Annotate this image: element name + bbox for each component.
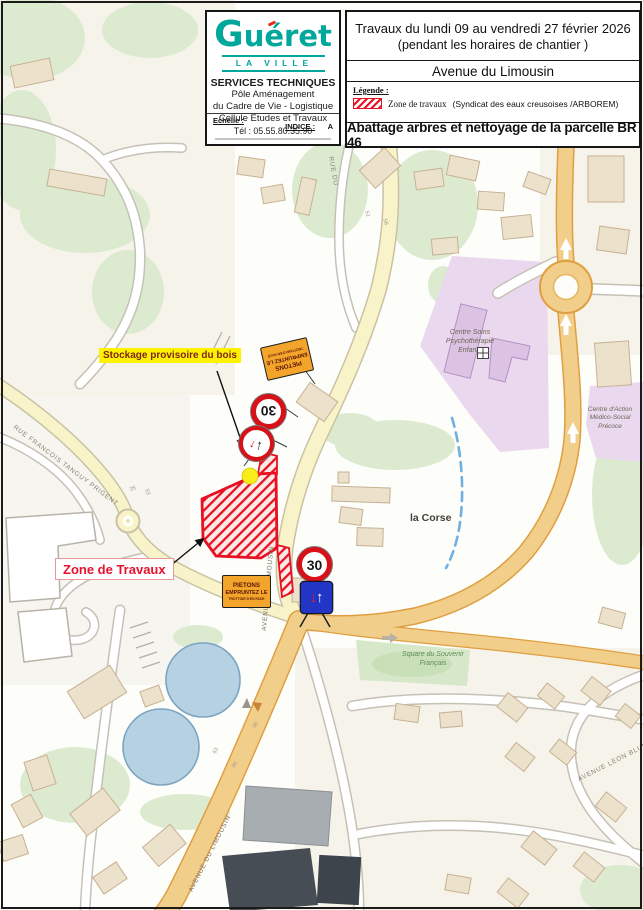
street-title: Avenue du Limousin [347, 61, 639, 82]
fine-print [215, 138, 331, 141]
legend-row: Zone de travaux (Syndicat des eaux creus… [353, 98, 633, 109]
pedestrian-sign: PIETONS EMPRUNTEZ LE TROTTOIR D'EN FACE [222, 575, 271, 608]
centre-action-line2: Médico-Social [578, 414, 642, 422]
speed-limit-value: 30 [307, 558, 323, 572]
logo-box: Guéret LA VILLE SERVICES TECHNIQUES Pôle… [205, 10, 341, 146]
square-line2: Français [388, 659, 478, 668]
index-label: INDICE : [285, 122, 315, 131]
title-block: Travaux du lundi 09 au vendredi 27 févri… [345, 10, 641, 148]
works-dates-box: Travaux du lundi 09 au vendredi 27 févri… [347, 12, 639, 61]
white-up-arrow-icon: ↑ [316, 590, 324, 605]
centre-action-line1: Centre d'Action [578, 406, 642, 414]
city-logo: Guéret [207, 16, 339, 54]
centre-action-line3: Précoce [578, 423, 642, 431]
centre-soins-line1: Centre Soins [420, 328, 520, 337]
legend-label: Légende : [353, 85, 633, 95]
storage-annotation: Stockage provisoire du bois [99, 348, 241, 363]
work-description-title: Abattage arbres et nettoyage de la parce… [347, 122, 639, 146]
speed-limit-sign: 30 [297, 547, 332, 582]
place-label-centre-soins: Centre Soins Psychothérapie Enfants [420, 328, 520, 355]
square-line1: Square du Souvenir [388, 650, 478, 659]
place-label-centre-action: Centre d'Action Médico-Social Précoce [578, 406, 642, 431]
place-label-la-corse: la Corse [410, 512, 451, 524]
roundabout-mini [117, 510, 140, 533]
works-dates-line2: (pendant les horaires de chantier ) [398, 38, 588, 52]
pedestrian-sign-line2: EMPRUNTEZ LE [226, 590, 268, 597]
legend-box: Légende : Zone de travaux (Syndicat des … [347, 82, 639, 122]
roundabout-main [540, 261, 592, 313]
pedestrian-sign-line1: PIETONS [233, 582, 260, 590]
works-plan-sheet: RUE DU RUE FRANCOIS TANGUY PRIGENT AVENU… [0, 0, 643, 910]
work-zone-swatch [353, 98, 382, 109]
place-label-square-souvenir: Square du Souvenir Français [388, 650, 478, 668]
org-line3: du Cadre de Vie - Logistique [207, 101, 339, 113]
centre-soins-line3: Enfants [420, 346, 520, 355]
hospital-icon [477, 346, 489, 364]
scale-index-row: Echelle : INDICE : A [207, 113, 339, 134]
scale-label: Echelle : [213, 116, 244, 125]
centre-soins-line2: Psychothérapie [420, 337, 520, 346]
index-value: A [328, 122, 333, 131]
org-line2: Pôle Aménagement [207, 89, 339, 101]
logo-tagline: LA VILLE [222, 55, 325, 72]
legend-item-label: Zone de travaux [388, 99, 446, 109]
pedestrian-sign-line3: TROTTOIR D'EN FACE [228, 597, 264, 601]
org-name: SERVICES TECHNIQUES [207, 77, 339, 90]
speed-limit-sign-rotated: 30 [251, 394, 286, 429]
speed-limit-value: 30 [261, 405, 277, 419]
priority-over-oncoming-sign: ↓ ↑ [301, 582, 332, 613]
work-zone-annotation: Zone de Travaux [55, 558, 174, 580]
works-dates-line1: Travaux du lundi 09 au vendredi 27 févri… [355, 21, 631, 36]
storage-spot-dot [242, 468, 258, 484]
legend-item-detail: (Syndicat des eaux creusoises /ARBOREM) [452, 99, 618, 109]
